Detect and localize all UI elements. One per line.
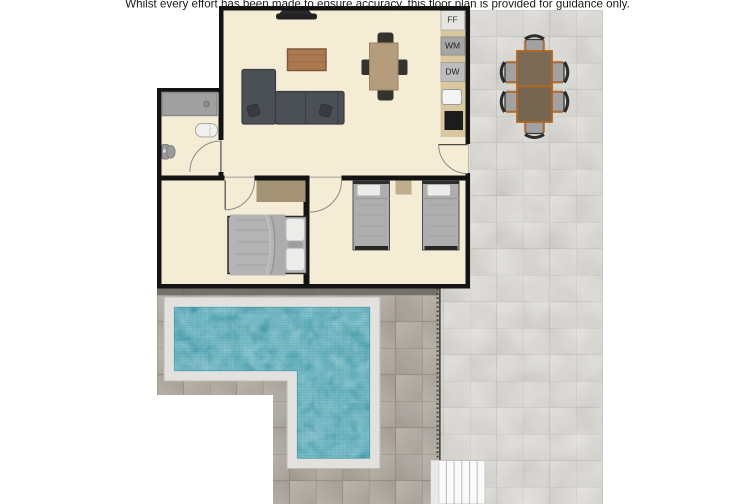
svg-text:Whilst every effort has been m: Whilst every effort has been made to ens…: [125, 0, 630, 11]
svg-text:DW: DW: [445, 67, 459, 77]
svg-text:WM: WM: [445, 41, 460, 51]
svg-text:FF: FF: [447, 15, 457, 25]
